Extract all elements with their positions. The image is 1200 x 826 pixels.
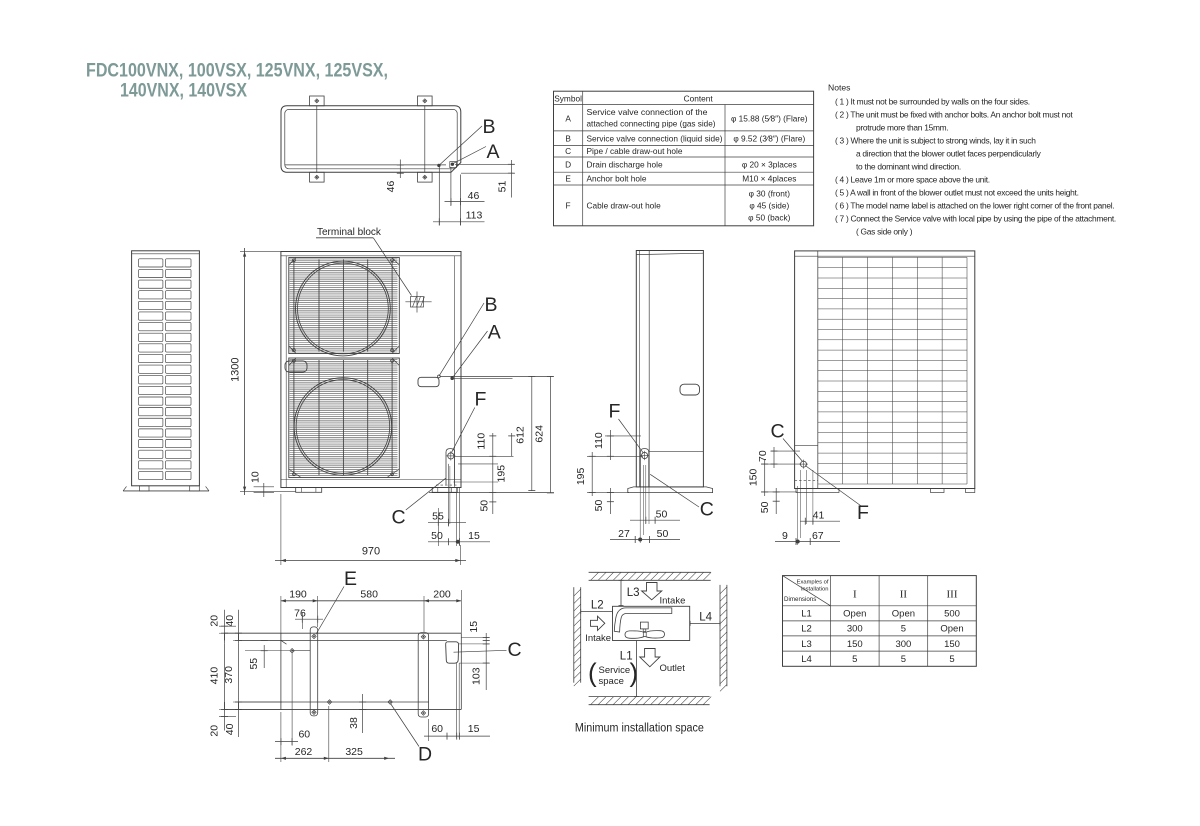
svg-text:III: III <box>947 589 958 601</box>
svg-text:15: 15 <box>468 723 480 735</box>
svg-text:5: 5 <box>852 654 857 665</box>
svg-text:( 6 ) The model name label is: ( 6 ) The model name label is attached o… <box>835 200 1114 210</box>
svg-text:( 2 ) The unit must be fixed: ( 2 ) The unit must be fixed with anchor… <box>835 109 1073 119</box>
svg-text:space: space <box>599 676 624 687</box>
svg-text:( 3 ) Where the unit is subje: ( 3 ) Where the unit is subject to stron… <box>835 135 1036 145</box>
svg-text:50: 50 <box>656 509 668 521</box>
svg-text:L3: L3 <box>801 639 812 650</box>
svg-text:protrude more than 15mm.: protrude more than 15mm. <box>856 122 948 132</box>
svg-text:Open: Open <box>940 624 963 635</box>
svg-text:( 4 ) Leave 1m or more space: ( 4 ) Leave 1m or more space above the u… <box>835 174 990 184</box>
svg-text:E: E <box>565 174 571 184</box>
svg-text:C: C <box>771 421 785 443</box>
svg-text:41: 41 <box>813 510 825 522</box>
svg-text:φ 20 × 3places: φ 20 × 3places <box>742 160 797 170</box>
svg-text:installation: installation <box>801 587 828 593</box>
svg-text:A: A <box>565 114 571 124</box>
svg-text:20: 20 <box>209 725 221 737</box>
svg-text:Intake: Intake <box>585 633 611 644</box>
svg-text:50: 50 <box>759 501 771 513</box>
svg-text:46: 46 <box>385 181 397 193</box>
svg-text:612: 612 <box>515 426 527 444</box>
svg-text:51: 51 <box>496 181 508 193</box>
svg-text:50: 50 <box>431 530 443 542</box>
svg-text:150: 150 <box>847 639 863 650</box>
svg-text:60: 60 <box>298 728 310 740</box>
svg-text:φ 50 (back): φ 50 (back) <box>748 213 791 223</box>
svg-text:L2: L2 <box>591 599 604 611</box>
svg-text:140VNX, 140VSX: 140VNX, 140VSX <box>120 80 247 102</box>
svg-text:110: 110 <box>475 433 487 450</box>
svg-text:( 5 ) A wall in front of the: ( 5 ) A wall in front of the blower outl… <box>835 187 1079 197</box>
svg-text:C: C <box>508 639 522 661</box>
svg-text:Open: Open <box>843 609 866 620</box>
svg-text:C: C <box>565 146 571 156</box>
svg-text:50: 50 <box>479 500 491 512</box>
svg-text:attached connecting pipe (gas: attached connecting pipe (gas side) <box>587 118 716 128</box>
svg-text:F: F <box>566 201 571 211</box>
svg-text:580: 580 <box>360 589 378 601</box>
svg-text:67: 67 <box>812 530 824 542</box>
svg-text:Anchor bolt hole: Anchor bolt hole <box>587 174 647 184</box>
svg-text:a direction that the blower ou: a direction that the blower outlet faces… <box>856 148 1042 158</box>
svg-text:B: B <box>565 133 571 143</box>
svg-text:50: 50 <box>657 528 669 540</box>
svg-text:300: 300 <box>895 639 911 650</box>
svg-text:5: 5 <box>949 654 954 665</box>
svg-text:Pipe / cable draw-out hole: Pipe / cable draw-out hole <box>587 146 683 156</box>
svg-text:): ) <box>630 658 639 688</box>
svg-text:( Gas side only ): ( Gas side only ) <box>856 226 913 236</box>
svg-text:20: 20 <box>209 615 221 627</box>
svg-text:(: ( <box>588 658 597 688</box>
svg-text:M10 × 4places: M10 × 4places <box>742 174 796 184</box>
svg-text:195: 195 <box>575 467 587 485</box>
svg-text:Service valve connection (liqu: Service valve connection (liquid side) <box>587 133 723 143</box>
svg-text:Drain discharge hole: Drain discharge hole <box>587 160 663 170</box>
svg-text:D: D <box>418 744 432 766</box>
svg-text:60: 60 <box>431 723 443 735</box>
svg-text:27: 27 <box>618 528 630 540</box>
svg-text:Cable draw-out hole: Cable draw-out hole <box>587 201 662 211</box>
svg-text:Terminal block: Terminal block <box>317 227 382 238</box>
svg-text:B: B <box>485 294 498 316</box>
svg-text:195: 195 <box>496 465 508 483</box>
svg-text:to the dominant wind direction: to the dominant wind direction. <box>856 161 961 171</box>
svg-text:325: 325 <box>345 746 363 758</box>
svg-text:76: 76 <box>294 607 306 619</box>
svg-text:A: A <box>487 141 500 163</box>
svg-text:300: 300 <box>847 624 863 635</box>
svg-text:L4: L4 <box>801 654 812 665</box>
svg-text:Symbol: Symbol <box>554 93 582 103</box>
svg-text:C: C <box>392 507 406 529</box>
svg-text:103: 103 <box>471 667 483 685</box>
svg-text:500: 500 <box>944 609 960 620</box>
svg-text:Service: Service <box>599 665 631 676</box>
svg-text:190: 190 <box>289 589 307 601</box>
svg-text:970: 970 <box>362 546 380 558</box>
svg-text:150: 150 <box>944 639 960 650</box>
svg-text:F: F <box>475 389 487 411</box>
svg-text:L4: L4 <box>699 612 712 624</box>
svg-text:370: 370 <box>223 666 235 684</box>
svg-text:262: 262 <box>295 746 313 758</box>
svg-text:Service valve connection of th: Service valve connection of the <box>587 107 708 117</box>
svg-text:E: E <box>344 568 357 590</box>
svg-text:F: F <box>857 502 869 524</box>
svg-text:( 1 ) It must not be surround: ( 1 ) It must not be surrounded by walls… <box>835 96 1030 106</box>
svg-text:15: 15 <box>468 621 480 633</box>
svg-text:F: F <box>609 401 621 423</box>
svg-text:Examples of: Examples of <box>797 580 829 586</box>
svg-text:( 7 ) Connect the Service val: ( 7 ) Connect the Service valve with loc… <box>835 213 1116 223</box>
svg-text:50: 50 <box>593 500 605 512</box>
svg-text:410: 410 <box>209 667 221 685</box>
svg-text:FDC100VNX, 100VSX, 125VNX, 125: FDC100VNX, 100VSX, 125VNX, 125VSX, <box>86 60 388 82</box>
svg-text:Minimum installation space: Minimum installation space <box>575 723 704 735</box>
svg-text:D: D <box>565 160 571 170</box>
svg-text:110: 110 <box>593 432 605 449</box>
svg-text:L2: L2 <box>801 624 812 635</box>
svg-text:Intake: Intake <box>660 596 686 607</box>
svg-text:L3: L3 <box>627 587 640 599</box>
svg-text:Content: Content <box>684 93 714 103</box>
svg-text:200: 200 <box>433 589 451 601</box>
svg-text:II: II <box>900 589 908 601</box>
svg-text:φ 15.88 (5⁄8″) (Flare): φ 15.88 (5⁄8″) (Flare) <box>731 114 808 124</box>
svg-text:624: 624 <box>534 425 546 443</box>
svg-text:150: 150 <box>748 468 760 486</box>
svg-text:Dimensions: Dimensions <box>784 596 816 603</box>
svg-text:φ 30 (front): φ 30 (front) <box>749 189 791 199</box>
svg-text:I: I <box>853 589 857 601</box>
svg-text:φ 9.52 (3⁄8″) (Flare): φ 9.52 (3⁄8″) (Flare) <box>733 133 805 143</box>
svg-text:5: 5 <box>901 624 906 635</box>
svg-text:Outlet: Outlet <box>660 663 686 674</box>
svg-text:46: 46 <box>468 190 480 202</box>
svg-text:φ 45 (side): φ 45 (side) <box>749 201 789 211</box>
svg-text:40: 40 <box>224 723 236 735</box>
svg-text:38: 38 <box>348 717 360 729</box>
svg-text:9: 9 <box>782 530 788 542</box>
svg-text:10: 10 <box>250 471 262 483</box>
svg-text:55: 55 <box>248 658 260 670</box>
svg-text:113: 113 <box>466 210 483 222</box>
svg-text:40: 40 <box>224 615 236 627</box>
svg-text:Notes: Notes <box>828 83 850 93</box>
svg-text:5: 5 <box>901 654 906 665</box>
svg-text:B: B <box>483 116 496 138</box>
svg-text:15: 15 <box>468 530 480 542</box>
svg-text:C: C <box>700 499 714 521</box>
svg-text:70: 70 <box>757 450 769 462</box>
svg-text:A: A <box>488 322 501 344</box>
svg-text:55: 55 <box>432 511 444 523</box>
svg-text:1300: 1300 <box>230 357 242 381</box>
svg-text:Open: Open <box>892 609 915 620</box>
svg-text:L1: L1 <box>801 609 812 620</box>
